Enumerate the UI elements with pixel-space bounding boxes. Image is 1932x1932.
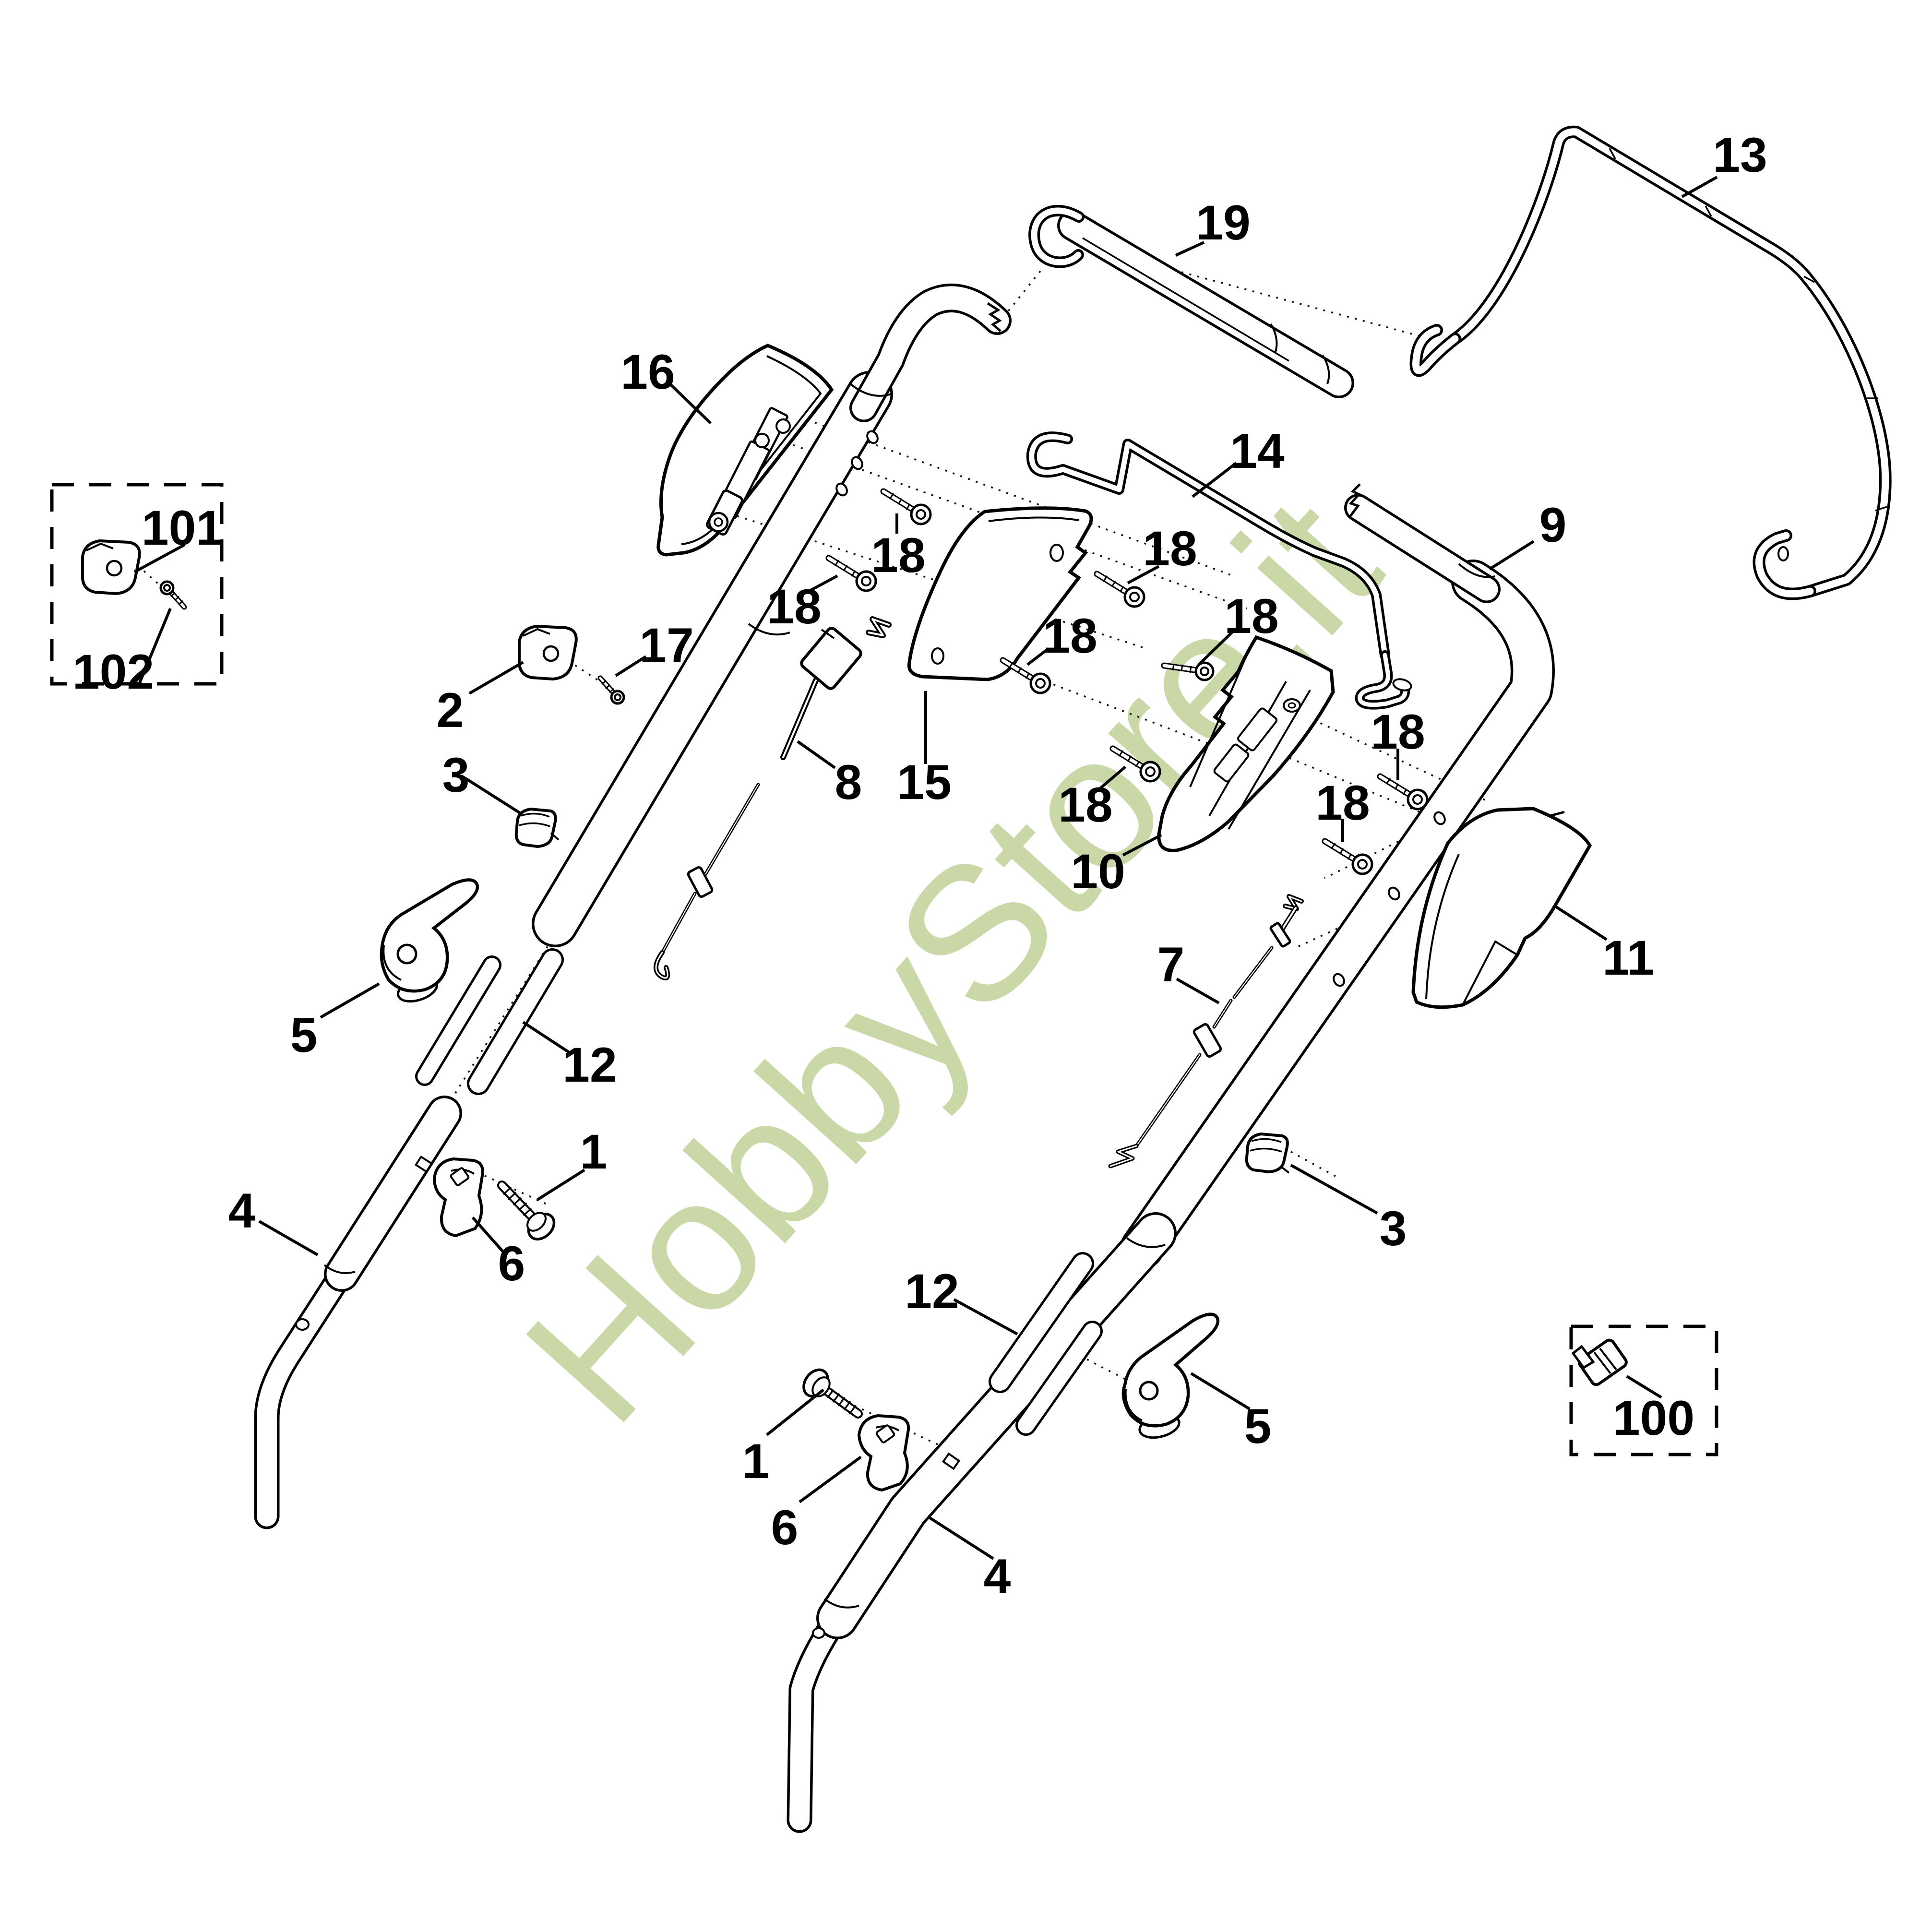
svg-text:12: 12 <box>562 1038 617 1092</box>
svg-text:8: 8 <box>835 755 862 810</box>
svg-text:1: 1 <box>580 1124 608 1179</box>
svg-text:6: 6 <box>771 1500 799 1555</box>
svg-text:11: 11 <box>1602 930 1654 985</box>
svg-text:16: 16 <box>620 345 675 399</box>
svg-text:3: 3 <box>442 748 470 802</box>
svg-text:2: 2 <box>437 683 464 738</box>
svg-text:100: 100 <box>1613 1391 1694 1445</box>
svg-text:4: 4 <box>228 1183 256 1238</box>
svg-text:9: 9 <box>1539 498 1567 552</box>
svg-text:18: 18 <box>1315 775 1370 830</box>
svg-text:19: 19 <box>1196 195 1250 250</box>
svg-text:18: 18 <box>1224 589 1278 644</box>
svg-text:18: 18 <box>1371 704 1425 759</box>
svg-text:10: 10 <box>1071 844 1125 899</box>
svg-text:13: 13 <box>1713 128 1767 182</box>
svg-text:3: 3 <box>1380 1201 1407 1256</box>
svg-text:102: 102 <box>72 644 154 699</box>
svg-text:18: 18 <box>1043 608 1097 663</box>
svg-text:5: 5 <box>1244 1399 1272 1454</box>
svg-text:18: 18 <box>1143 521 1197 576</box>
svg-text:1: 1 <box>742 1434 770 1489</box>
svg-text:17: 17 <box>639 618 693 673</box>
svg-text:5: 5 <box>290 1008 318 1062</box>
svg-text:18: 18 <box>1058 777 1112 832</box>
svg-text:101: 101 <box>142 501 223 555</box>
svg-text:14: 14 <box>1230 424 1285 478</box>
svg-text:4: 4 <box>984 1549 1011 1604</box>
svg-text:18: 18 <box>871 528 925 583</box>
svg-text:12: 12 <box>905 1264 959 1319</box>
svg-text:18: 18 <box>767 579 821 634</box>
svg-text:6: 6 <box>498 1236 525 1291</box>
svg-text:15: 15 <box>897 755 951 810</box>
svg-text:7: 7 <box>1157 937 1185 992</box>
